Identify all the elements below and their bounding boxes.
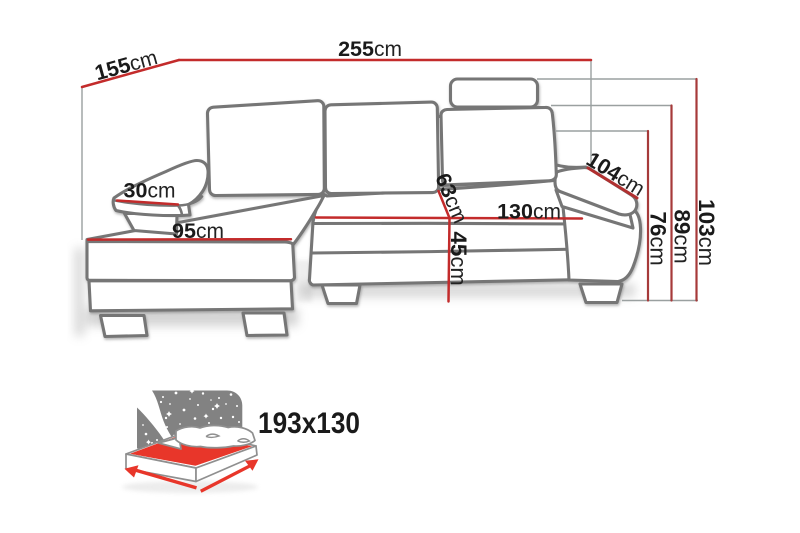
svg-text:89cm: 89cm [670,209,695,263]
svg-text:130cm: 130cm [497,200,561,224]
svg-text:95cm: 95cm [172,219,224,243]
svg-text:193x130: 193x130 [258,407,360,440]
svg-text:103cm: 103cm [694,199,719,266]
svg-text:255cm: 255cm [338,37,402,61]
svg-text:155cm: 155cm [92,45,160,85]
svg-text:30cm: 30cm [124,179,176,203]
svg-text:45cm: 45cm [446,231,471,285]
svg-text:76cm: 76cm [646,211,671,265]
